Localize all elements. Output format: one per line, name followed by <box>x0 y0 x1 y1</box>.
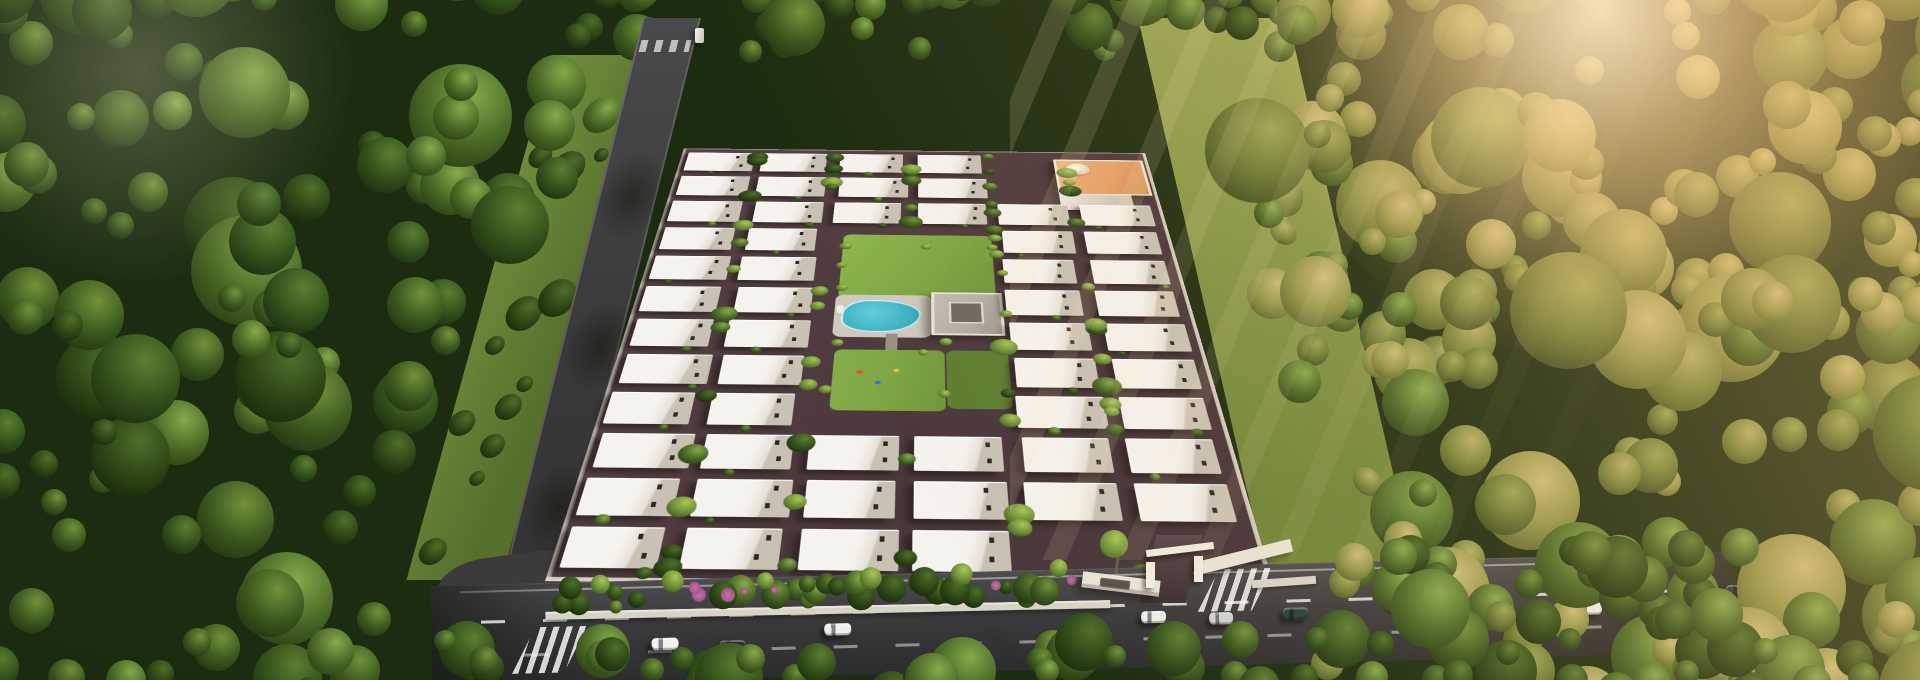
courtyard-tree <box>706 171 713 174</box>
forest-tree <box>1674 172 1719 217</box>
driveway-tree <box>898 453 916 465</box>
courtyard-tree <box>723 469 735 476</box>
palm-tree <box>831 339 844 346</box>
forest-tree <box>1575 56 1604 85</box>
forest-tree <box>1523 99 1596 172</box>
villa-block <box>918 155 982 174</box>
villa-block <box>1134 483 1238 522</box>
villa-block <box>1118 397 1212 430</box>
forest-tree <box>1820 355 1865 400</box>
forest-tree <box>1510 252 1627 369</box>
palm-tree <box>921 244 932 250</box>
forest-tree <box>1335 543 1373 581</box>
forest-tree <box>1280 256 1351 327</box>
villa-block <box>706 393 795 426</box>
forest-tree <box>401 11 427 37</box>
forest-tree <box>30 450 58 478</box>
forest-tree <box>1382 292 1417 327</box>
forest-tree <box>469 646 499 676</box>
forest-tree <box>1721 528 1759 566</box>
water-tank <box>695 28 704 43</box>
driveway-tree <box>988 235 1002 242</box>
forest-tree <box>851 17 874 40</box>
villa-block <box>839 154 903 173</box>
villa-block <box>918 203 987 224</box>
forest-tree <box>1772 417 1807 452</box>
forest-tree <box>565 23 591 49</box>
forest-tree <box>153 91 192 130</box>
forest-tree <box>387 221 429 263</box>
forest-tree <box>0 646 19 680</box>
villa-block <box>1022 437 1115 473</box>
forest-tree <box>1559 0 1627 7</box>
palm-tree <box>938 390 951 398</box>
forest-tree <box>406 136 446 176</box>
villa-block <box>733 287 813 313</box>
pool-slide <box>836 305 844 313</box>
forest-tree <box>92 90 149 147</box>
forest-tree <box>1205 98 1310 203</box>
courtyard-tree <box>793 196 802 200</box>
villa-block <box>806 435 899 471</box>
driveway-tree <box>982 154 995 160</box>
forest-tree <box>963 0 1008 7</box>
forest-tree <box>592 0 621 9</box>
forest-tree <box>1055 613 1113 671</box>
villa-block <box>667 201 743 222</box>
forest-tree <box>595 637 629 671</box>
forest-tree <box>797 643 836 680</box>
villa-block <box>718 355 805 385</box>
forest-tree <box>908 37 931 60</box>
forest-tree <box>1278 360 1321 403</box>
forest-tree <box>1380 538 1417 575</box>
driveway-tree <box>898 216 922 229</box>
forest-tree <box>387 277 443 333</box>
forest-tree <box>1522 211 1551 240</box>
driveway-tree <box>1062 179 1076 185</box>
central-lawn <box>838 234 996 299</box>
forest-tree <box>1752 638 1778 664</box>
forest-tree <box>1693 0 1731 15</box>
play-equipment-yellow <box>893 369 899 372</box>
forest-tree <box>1440 275 1495 330</box>
forest-tree <box>524 100 575 151</box>
forest-tree <box>1839 0 1885 46</box>
villa-block <box>1009 322 1092 350</box>
courtyard-tree <box>1047 427 1061 435</box>
villa-block <box>759 153 827 172</box>
courtyard-tree <box>1161 285 1170 289</box>
forest-tree <box>1817 409 1859 451</box>
villa-block <box>1002 259 1077 283</box>
palm-tree <box>661 570 683 592</box>
villa-block <box>1094 291 1180 317</box>
forest-tree <box>263 268 329 334</box>
forest-tree <box>471 186 549 264</box>
forest-tree <box>1146 621 1201 676</box>
forest-tree <box>1475 474 1536 535</box>
palm-tree <box>986 244 998 250</box>
hedge-bush <box>515 376 535 392</box>
forest-tree <box>434 630 456 652</box>
forest-tree <box>1304 121 1331 148</box>
forest-tree <box>1225 6 1259 40</box>
playground-lawn <box>829 349 946 411</box>
forest-tree <box>1655 601 1693 639</box>
car <box>1141 611 1166 624</box>
driveway-tree <box>737 190 763 202</box>
forest-tree <box>1676 55 1720 99</box>
driveway-tree <box>901 176 922 186</box>
courtyard-tree <box>663 280 672 285</box>
forest-tree <box>1409 479 1437 507</box>
forest-tree <box>106 660 146 680</box>
courtyard-tree <box>1149 473 1161 480</box>
palm-tree <box>918 349 928 355</box>
forest-tree <box>1391 569 1470 648</box>
driveway-tree <box>983 208 1002 217</box>
hedge-bush <box>483 336 507 355</box>
forest-tree <box>372 430 416 474</box>
driveway-tree <box>904 204 918 211</box>
hedge-bush <box>477 434 508 458</box>
driveway-tree <box>985 201 998 207</box>
driveway-tree <box>825 184 838 190</box>
villa-block <box>803 480 895 519</box>
courtyard-tree <box>804 222 815 227</box>
driveway-tree <box>1000 389 1016 398</box>
courtyard-tree <box>739 425 752 432</box>
palm-tree <box>999 310 1012 317</box>
forest-tree <box>1431 87 1532 188</box>
forest-tree <box>357 137 413 193</box>
villa-block <box>629 319 714 347</box>
villa-block <box>724 320 811 348</box>
villa-block <box>997 204 1070 225</box>
villa-block <box>576 478 681 517</box>
forest-tree <box>183 628 211 656</box>
aerial-render-scene <box>0 0 1920 680</box>
courtyard-tree <box>593 514 612 525</box>
forest-tree <box>1356 661 1388 680</box>
villa-block <box>700 434 795 470</box>
villa-block <box>559 526 665 568</box>
forest-tree <box>1104 645 1126 667</box>
courtyard-tree <box>1016 253 1024 257</box>
palm-tree <box>939 338 952 346</box>
forest-tree <box>7 299 43 335</box>
forest-tree <box>1722 419 1767 464</box>
villa-block <box>603 392 696 425</box>
forest-tree <box>1404 0 1441 12</box>
forest-tree <box>762 0 825 56</box>
forest-tree <box>323 510 358 545</box>
courtyard-tree <box>772 251 780 255</box>
driveway-tree <box>982 183 998 191</box>
forest-tree <box>1305 627 1329 651</box>
courtyard-tree <box>874 197 883 201</box>
driveway-tree <box>901 164 922 174</box>
courtyard-tree <box>1190 429 1205 437</box>
forest-tree <box>1558 628 1581 651</box>
forest-tree <box>91 334 180 423</box>
forest-tree <box>4 142 49 187</box>
villa-block <box>1084 232 1163 255</box>
driveway-tree <box>983 169 996 175</box>
forest-tree <box>1367 631 1394 658</box>
villa-block <box>1004 290 1083 316</box>
villa-block <box>639 286 722 312</box>
villa-block <box>1103 323 1192 351</box>
hedge-bush <box>445 410 478 436</box>
forest-tree <box>1516 599 1561 644</box>
forest-tree <box>357 602 391 636</box>
courtyard-tree <box>863 172 874 177</box>
forest-tree <box>199 47 290 138</box>
villa-block <box>745 228 817 251</box>
forest-tree <box>276 332 302 358</box>
forest-tree <box>384 361 434 411</box>
palm-tree <box>950 563 972 585</box>
forest-tree <box>251 0 277 11</box>
villa-block <box>1090 260 1171 284</box>
forest-tree <box>1763 81 1811 129</box>
car <box>1209 612 1233 625</box>
forest-tree <box>232 320 270 358</box>
forest-tree <box>128 172 168 212</box>
villa-block <box>1023 482 1123 521</box>
forest-tree <box>1316 84 1344 112</box>
forest-tree <box>431 326 460 355</box>
forest-tree <box>1749 148 1776 175</box>
forest-tree <box>902 0 927 15</box>
courtyard-tree <box>1051 315 1062 321</box>
crosswalk-marking <box>639 40 692 52</box>
forest-tree <box>1440 425 1491 476</box>
forest-tree <box>1848 663 1879 680</box>
villa-block <box>752 202 824 223</box>
forest-tree <box>1568 531 1612 575</box>
forest-tree <box>107 212 134 239</box>
driveway-tree <box>1081 283 1096 290</box>
forest-tree <box>1496 641 1520 665</box>
forest-tree <box>218 284 246 312</box>
villa-block <box>1014 358 1100 388</box>
villa-block <box>1079 205 1156 226</box>
forest-tree <box>1690 588 1743 641</box>
forest-tree <box>1436 351 1467 382</box>
shrub <box>999 580 1013 594</box>
courtyard-tree <box>657 424 669 431</box>
forest-tree <box>824 0 854 18</box>
palm-tree <box>1049 559 1067 577</box>
forest-tree <box>1857 116 1892 151</box>
forest-tree <box>335 0 388 31</box>
driveway-tree <box>989 250 1005 258</box>
forest-tree <box>1752 281 1793 322</box>
forest-tree <box>1848 277 1883 312</box>
forest-tree <box>237 182 281 226</box>
forest-tree <box>1485 601 1516 632</box>
driveway-tree <box>810 286 828 296</box>
south-garden <box>946 350 1013 409</box>
forest-tree <box>67 103 95 131</box>
forest-tree <box>736 644 765 673</box>
driveway-tree <box>985 225 1004 234</box>
courtyard-tree <box>962 225 968 228</box>
flowering-shrub <box>1067 575 1077 585</box>
driveway-tree <box>798 379 818 390</box>
villa-block <box>659 227 736 250</box>
courtyard-tree <box>707 222 717 227</box>
driveway-tree <box>999 414 1022 428</box>
villa-block <box>833 202 902 223</box>
forest-tree <box>165 43 203 81</box>
forest-tree <box>48 659 85 680</box>
hedge-bush <box>492 394 525 420</box>
forest-tree <box>283 174 330 221</box>
forest-tree <box>1674 660 1699 680</box>
courtyard-tree <box>704 517 715 524</box>
villa-block <box>649 256 732 280</box>
palm-tree <box>997 270 1009 276</box>
forest-tree <box>52 518 86 552</box>
forest-tree <box>1514 569 1543 598</box>
forest-tree <box>236 569 304 637</box>
forest-tree <box>670 647 694 671</box>
car <box>1283 607 1308 620</box>
forest-tree <box>536 157 578 199</box>
villa-block <box>1112 359 1203 389</box>
courtyard-tree <box>1093 226 1103 231</box>
clubhouse-skylight <box>949 302 985 324</box>
forest-tree <box>9 588 54 633</box>
forest-tree <box>1598 452 1641 495</box>
villa-block <box>1002 231 1077 254</box>
driveway-tree <box>1066 218 1086 227</box>
forest-tree <box>1878 601 1915 638</box>
courtyard-tree <box>680 346 692 352</box>
forest-tree <box>1466 219 1516 269</box>
forest-tree <box>1277 5 1317 45</box>
villa-block <box>838 177 908 197</box>
driveway-tree <box>893 549 917 566</box>
crosswalk-marking <box>1198 568 1273 612</box>
forest-tree <box>444 67 478 101</box>
forest-tree <box>81 198 107 224</box>
courtyard-tree <box>877 223 887 228</box>
forest-tree <box>307 628 354 675</box>
forest-tree <box>1371 341 1409 379</box>
forest-tree <box>91 419 117 445</box>
forest-tree <box>1375 191 1422 238</box>
villa-block <box>914 481 1010 520</box>
forest-tree <box>162 515 201 554</box>
courtyard-tree <box>749 347 761 354</box>
courtyard-tree <box>686 384 697 390</box>
villa-block <box>683 152 755 171</box>
forest-tree <box>1486 0 1565 13</box>
forest-tree <box>41 489 67 515</box>
villa-block <box>1015 396 1109 429</box>
forest-tree <box>146 660 174 680</box>
forest-tree <box>1895 178 1920 218</box>
forest-tree <box>343 475 376 508</box>
forest-tree <box>1222 621 1259 658</box>
forest-tree <box>290 455 317 482</box>
forest-tree <box>52 310 83 341</box>
villa-block <box>679 528 783 570</box>
shrub <box>628 591 645 608</box>
forest-tree <box>1898 251 1920 277</box>
villa-block <box>797 529 899 571</box>
forest-tree <box>1035 659 1059 680</box>
forest-tree <box>197 481 274 558</box>
forest-tree <box>433 94 479 140</box>
forest-tree <box>640 658 664 680</box>
forest-tree <box>1668 530 1705 567</box>
villa-block <box>914 436 1004 472</box>
hedge-bush <box>467 471 486 486</box>
forest-tree <box>471 0 525 15</box>
forest-tree <box>739 40 762 63</box>
villa-block <box>619 354 714 384</box>
driveway-tree <box>800 356 821 368</box>
car <box>824 623 851 636</box>
forest-tree <box>1382 369 1449 436</box>
villa-block <box>1125 438 1222 474</box>
villa-block <box>737 256 816 280</box>
forest-tree <box>1862 211 1896 245</box>
villa-block <box>918 178 988 198</box>
driveway-tree <box>1007 519 1033 536</box>
courtyard-tree <box>785 313 795 318</box>
driveway-tree <box>809 301 825 310</box>
villa-block <box>755 177 827 197</box>
hedge-bush <box>416 538 450 565</box>
forest-tree <box>0 463 20 499</box>
villa-block <box>690 479 794 518</box>
forest-tree <box>1672 22 1700 50</box>
forest-tree <box>0 409 25 454</box>
driveway-tree <box>1105 424 1126 436</box>
courtyard-tree <box>1067 387 1080 394</box>
courtyard-tree <box>1118 351 1126 355</box>
forest-tree <box>1480 23 1514 57</box>
